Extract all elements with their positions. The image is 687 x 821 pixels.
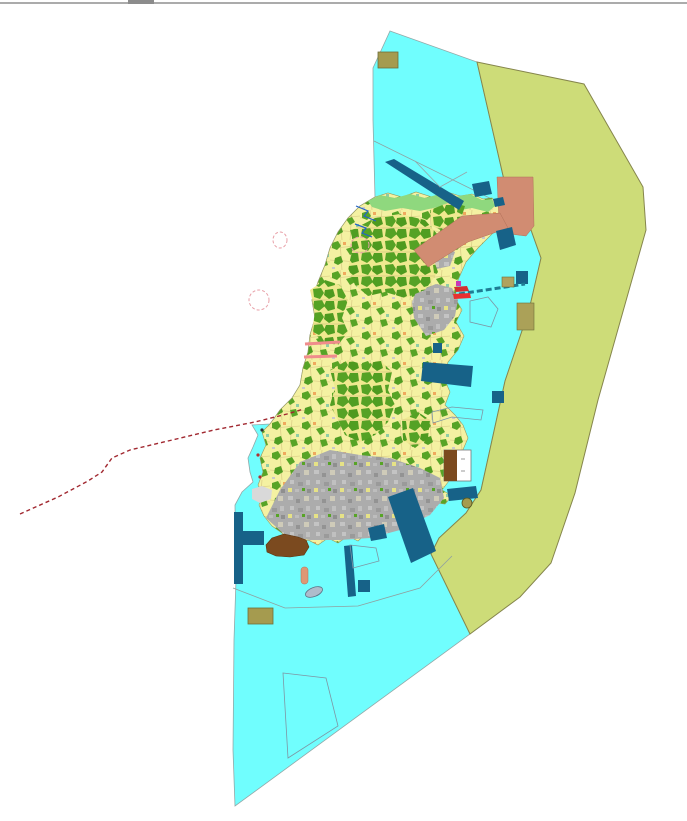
khaki-block-southwest — [248, 608, 273, 624]
navy-square-south — [358, 580, 370, 592]
khaki-islet — [462, 498, 472, 508]
navy-rect-se — [492, 391, 504, 403]
map-application-window — [0, 0, 687, 821]
coast-dot-3 — [256, 453, 259, 456]
salmon-buoy-bar — [301, 567, 308, 584]
khaki-block-top — [378, 52, 398, 68]
navy-jetty-west-vertical — [234, 512, 243, 584]
pink-groyne-2 — [304, 356, 337, 357]
coast-dot-1 — [258, 475, 261, 478]
red-arrow-east — [453, 293, 471, 299]
magenta-marker — [456, 281, 461, 286]
dashed-ellipse-nw — [273, 232, 287, 248]
split-block-brown-half — [444, 450, 457, 481]
dashed-ellipse-west — [249, 290, 269, 310]
pink-groyne-1 — [305, 342, 340, 344]
khaki-block-east-large — [517, 303, 534, 330]
coast-dot-2 — [260, 428, 263, 431]
navy-rect-mid — [433, 343, 442, 353]
map-canvas[interactable] — [0, 0, 687, 821]
red-patch-east — [454, 286, 469, 292]
navy-rect-east — [516, 271, 528, 284]
navy-jetty-west-arm — [243, 531, 264, 545]
khaki-block-east-small — [502, 277, 514, 287]
